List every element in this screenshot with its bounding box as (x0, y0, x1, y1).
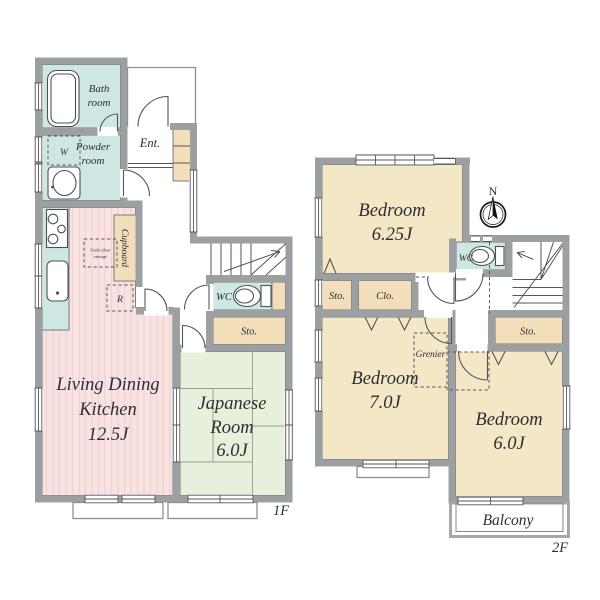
label-balcony: Balcony (483, 512, 534, 529)
terrace-left (73, 503, 163, 519)
label-bedroom70-1: Bedroom (351, 369, 418, 389)
label-cupboard: Cupboard (119, 229, 129, 267)
label-ldk-3: 12.5J (88, 425, 129, 445)
toilet-1f-icon (261, 286, 271, 307)
label-storage-2f-right: Sto. (520, 327, 536, 338)
label-bedroom60-2: 6.0J (493, 434, 525, 454)
floor-tag-1f: 1F (273, 503, 289, 519)
label-bedroom70-2: 7.0J (369, 393, 401, 413)
label-grenier: Grenier (416, 350, 446, 360)
staircase-1f (211, 244, 286, 276)
label-under-floor-2: storage (94, 254, 107, 259)
kitchen-sink-icon (47, 261, 68, 301)
label-storage-2f-left: Sto. (329, 291, 345, 302)
floor-plan-canvas: Bath room Powder room W Ent. Cupboard Un… (0, 0, 600, 600)
label-japanese-1: Japanese (198, 394, 267, 414)
entrance-door (138, 97, 168, 127)
label-bedroom625-2: 6.25J (372, 225, 413, 245)
floor-plan-1f: Bath room Powder room W Ent. Cupboard Un… (34, 58, 294, 520)
staircase-2f (513, 242, 563, 308)
label-japanese-3: 6.0J (216, 441, 248, 461)
label-powder-1: Powder (75, 141, 111, 153)
wc-counter-1f (272, 282, 286, 310)
label-powder-2: room (82, 155, 105, 167)
label-wc-1f: WC (216, 292, 233, 303)
compass-north-icon: N (481, 184, 506, 227)
label-storage-1f: Sto. (241, 327, 257, 338)
label-fridge: R (116, 295, 123, 305)
label-washer: W (60, 148, 69, 158)
shoe-cabinet (173, 129, 191, 181)
stairs-up-arrow (224, 251, 280, 272)
label-under-floor-1: Under floor (90, 248, 111, 253)
label-bedroom60-1: Bedroom (475, 410, 542, 430)
label-entrance: Ent. (139, 136, 160, 150)
label-north: N (489, 184, 498, 198)
label-ldk-1: Living Dining (55, 375, 159, 395)
bathtub-icon (48, 71, 80, 127)
label-closet-2f: Clo. (376, 291, 394, 302)
label-japanese-2: Room (209, 418, 253, 438)
stairs-up-arrow-2f (517, 252, 534, 260)
label-bath-2: room (88, 97, 111, 109)
floor-tag-2f: 2F (552, 540, 568, 556)
terrace-right (168, 503, 257, 519)
fixtures-2f (470, 247, 505, 266)
label-wc-2f: WC (459, 254, 474, 264)
floor-plan-2f: N Bedroom 6.25J Bedroom 7.0J Bedroom 6.0… (314, 154, 571, 556)
label-bath-1: Bath (89, 83, 110, 95)
label-bedroom625-1: Bedroom (358, 201, 425, 221)
label-ldk-2: Kitchen (78, 400, 137, 420)
toilet-2f-icon (496, 247, 505, 266)
entrance-step (128, 164, 173, 168)
